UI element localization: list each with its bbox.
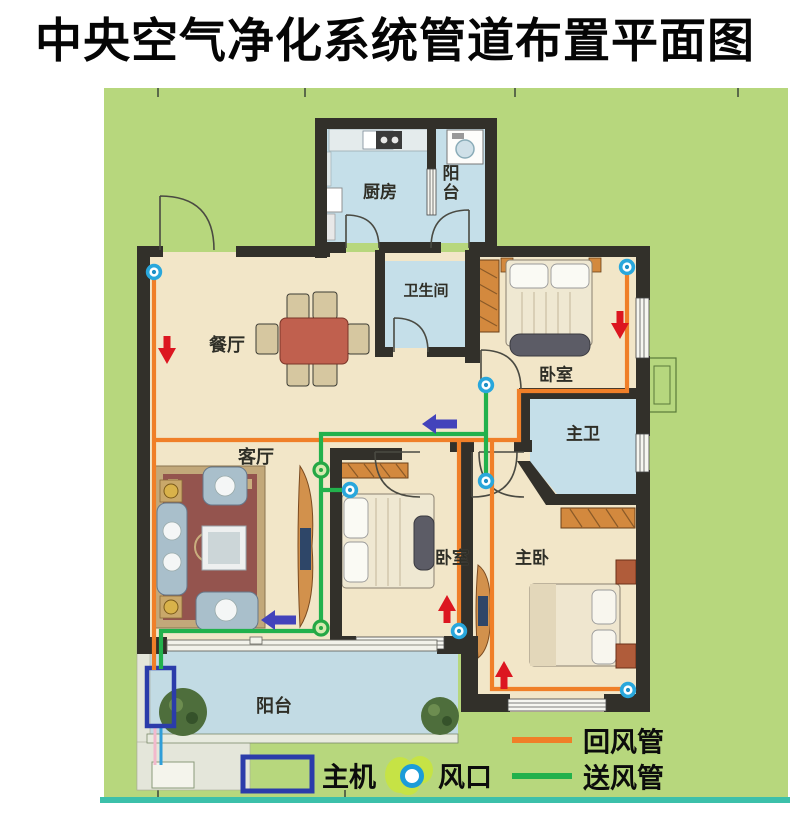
washing-machine [447, 130, 483, 164]
bottom-teal-rule [100, 797, 790, 803]
room-label-balcony-bottom: 阳台 [256, 692, 292, 718]
room-label-kitchen: 厨房 [363, 178, 397, 203]
room-label-master-bedroom: 主卧 [515, 544, 549, 569]
room-label-living: 客厅 [238, 443, 274, 469]
balcony-railing [147, 734, 458, 743]
legend-label-return-duct: 回风管 [583, 721, 664, 760]
floor-plan-canvas [0, 0, 790, 816]
sofa [157, 503, 187, 595]
room-label-bathroom: 卫生间 [403, 280, 448, 301]
legend-label-supply-duct: 送风管 [583, 757, 664, 796]
room-label-master-bath: 主卫 [566, 420, 600, 445]
room-label-bedroom1: 卧室 [539, 361, 573, 386]
floor-plan-page: 中央空气净化系统管道布置平面图 [0, 0, 790, 816]
room-label-balcony-top: 阳台 [437, 164, 462, 202]
room-label-dining: 餐厅 [209, 331, 245, 357]
master-bath-floor [530, 399, 636, 494]
tv [300, 528, 311, 570]
legend-label-main-unit: 主机 [322, 756, 376, 795]
legend-label-vent: 风口 [438, 756, 492, 795]
room-label-bedroom2: 卧室 [435, 544, 469, 569]
